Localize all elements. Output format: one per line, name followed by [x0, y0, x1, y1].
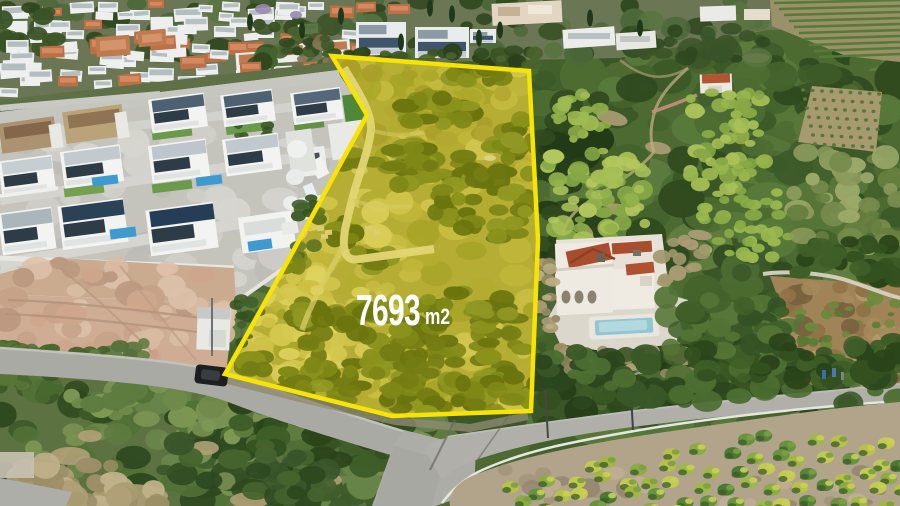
svg-text:m2: m2 — [425, 304, 450, 329]
svg-text:7693: 7693 — [356, 286, 420, 335]
